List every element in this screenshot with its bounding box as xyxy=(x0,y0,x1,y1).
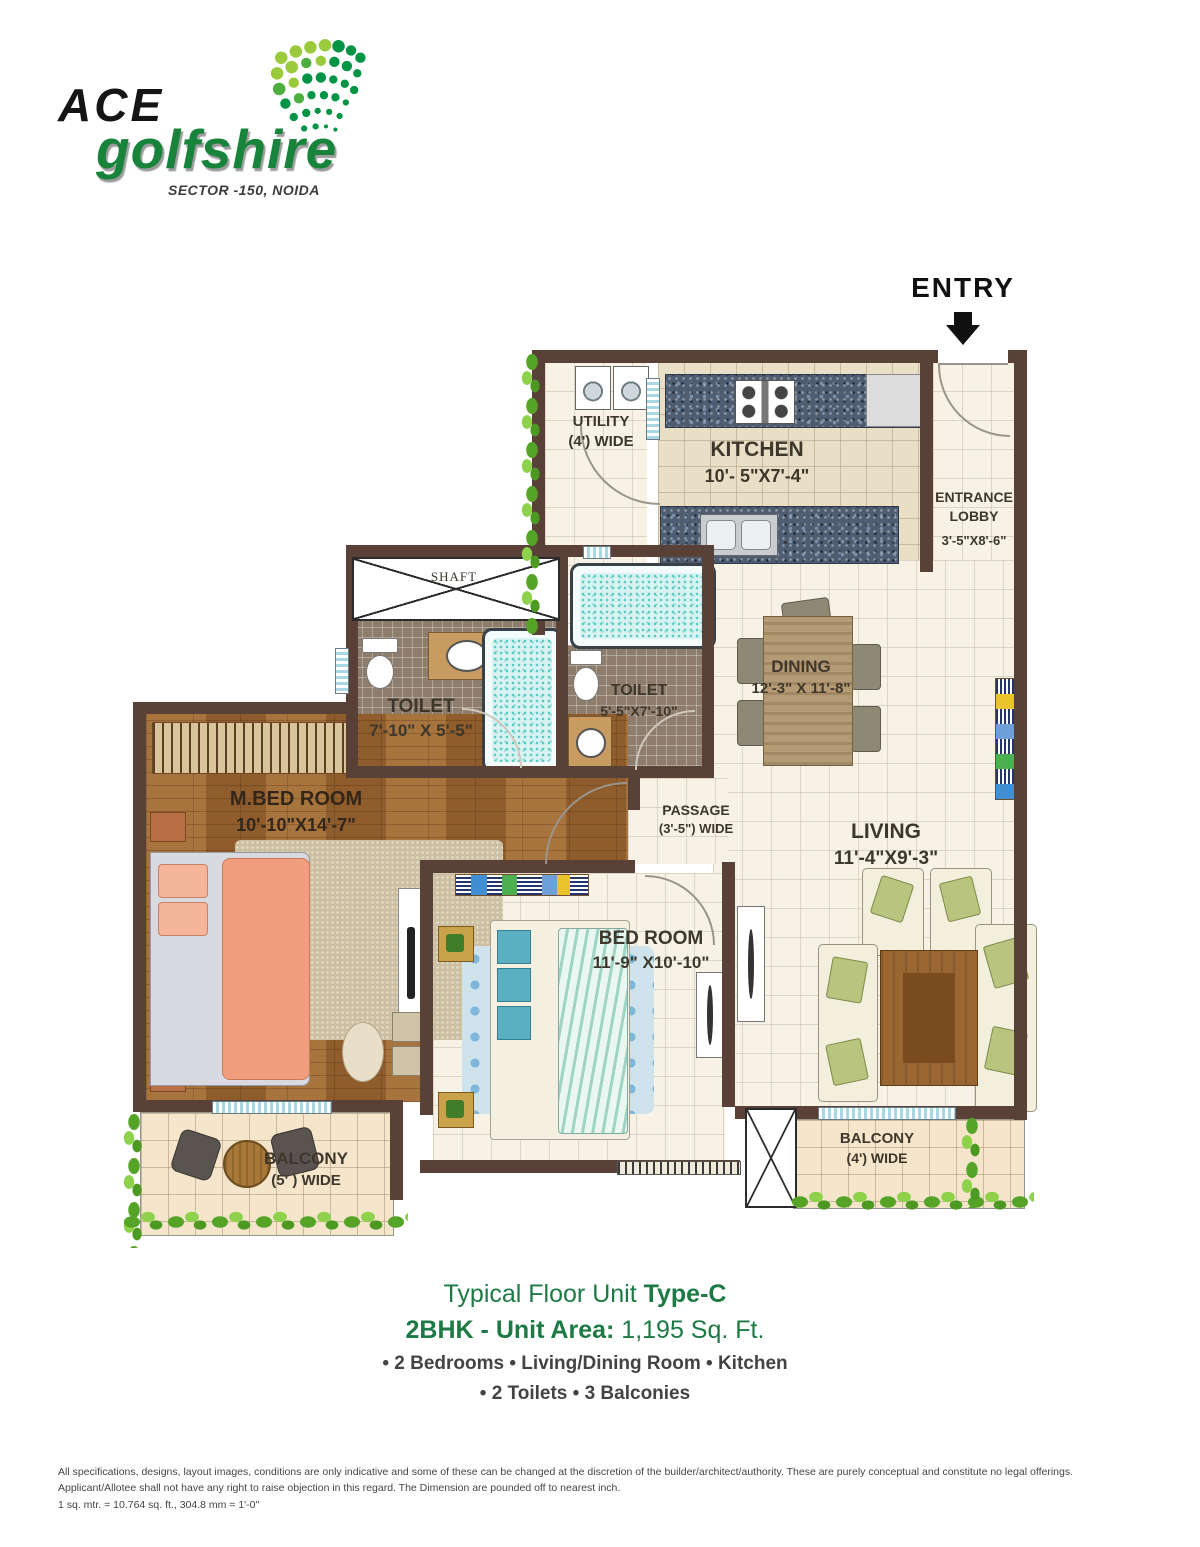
disclaimer-line3: 1 sq. mtr. = 10.764 sq. ft., 304.8 mm = … xyxy=(58,1497,1166,1513)
entry-door-opening xyxy=(938,350,1008,365)
wall-segment xyxy=(1014,350,1027,1120)
utility-label: UTILITY(4') WIDE xyxy=(568,412,633,453)
unit-area: 2BHK - Unit Area: 1,195 Sq. Ft. xyxy=(170,1316,1000,1345)
pillow xyxy=(158,902,208,936)
unit-features-line2: • 2 Toilets • 3 Balconies xyxy=(170,1383,1000,1405)
disclaimer-line2: Applicant/Allotee shall not have any rig… xyxy=(58,1480,1166,1496)
washbasin-icon xyxy=(576,728,606,758)
dining-chair xyxy=(851,644,881,690)
planter xyxy=(438,1092,474,1128)
dining-chair xyxy=(851,706,881,752)
toilet-common-label: TOILET5'-5"X7'-10" xyxy=(600,680,678,720)
coffee-table xyxy=(880,950,978,1086)
oval-rug xyxy=(342,1022,384,1082)
wardrobe xyxy=(696,972,724,1058)
kitchen-label: KITCHEN10'- 5"X7'-4" xyxy=(705,436,810,489)
toilet-master-label: TOILET7'-10" X 5'-5" xyxy=(369,694,473,743)
balcony-left-label: BALCONY(5' ) WIDE xyxy=(264,1148,348,1191)
window xyxy=(335,648,349,694)
wall-segment xyxy=(702,557,714,778)
passage-label: PASSAGE(3'-5") WIDE xyxy=(659,801,733,837)
toilet-wc-icon xyxy=(570,650,602,700)
book-shelf xyxy=(455,874,589,896)
sofa xyxy=(975,924,1037,1112)
wall-segment xyxy=(920,350,933,572)
balcony-right-label: BALCONY(4') WIDE xyxy=(840,1129,914,1168)
wall-segment xyxy=(420,860,433,1115)
plants-decor xyxy=(518,352,548,634)
brochure-page: ACE golfshire SECTOR -150, NOIDA ENTRY xyxy=(0,0,1200,1547)
wall-segment xyxy=(133,702,358,714)
cabinet xyxy=(737,906,765,1022)
bedroom-label: BED ROOM11'-9" X10'-10" xyxy=(593,926,710,975)
washing-machine-icon xyxy=(575,366,611,410)
planter xyxy=(438,926,474,962)
plants-decor xyxy=(790,1188,1034,1218)
pillow xyxy=(497,968,531,1002)
unit-title: Typical Floor Unit Type-C xyxy=(170,1280,1000,1309)
disclaimer: All specifications, designs, layout imag… xyxy=(58,1464,1166,1513)
tv-icon xyxy=(407,927,415,999)
plants-decor xyxy=(958,1116,986,1208)
shaft-label: SHAFT xyxy=(431,568,477,586)
pillow xyxy=(497,930,531,964)
unit-summary: Typical Floor Unit Type-C 2BHK - Unit Ar… xyxy=(170,1280,1000,1405)
window xyxy=(818,1107,956,1120)
fridge xyxy=(866,374,922,427)
entrance-lobby-label: ENTRANCELOBBY 3'-5"X8'-6" xyxy=(935,488,1013,549)
dining-label: DINING12'-3" X 11'-8" xyxy=(752,656,851,699)
pillow xyxy=(158,864,208,898)
plants-decor xyxy=(122,1208,408,1238)
living-label: LIVING11'-4"X9'-3" xyxy=(834,818,938,872)
blanket xyxy=(222,858,310,1080)
washing-machine-icon xyxy=(613,366,649,410)
wall-segment xyxy=(628,778,640,810)
pillow xyxy=(497,1006,531,1040)
stove-icon xyxy=(735,380,795,424)
disclaimer-line1: All specifications, designs, layout imag… xyxy=(58,1464,1166,1480)
nightstand xyxy=(150,812,186,842)
window xyxy=(212,1101,332,1114)
wall-segment xyxy=(133,702,146,1112)
window xyxy=(583,546,611,559)
armchair xyxy=(862,868,924,956)
wall-segment xyxy=(390,1100,403,1200)
master-bedroom-label: M.BED ROOM10'-10"X14'-7" xyxy=(230,786,362,837)
toilet-wc-icon xyxy=(362,638,398,690)
bathtub-icon xyxy=(570,563,716,649)
railing xyxy=(617,1161,741,1175)
unit-features-line1: • 2 Bedrooms • Living/Dining Room • Kitc… xyxy=(170,1353,1000,1375)
wall-segment xyxy=(722,862,735,1107)
sofa xyxy=(818,944,878,1102)
wardrobe xyxy=(152,722,350,774)
